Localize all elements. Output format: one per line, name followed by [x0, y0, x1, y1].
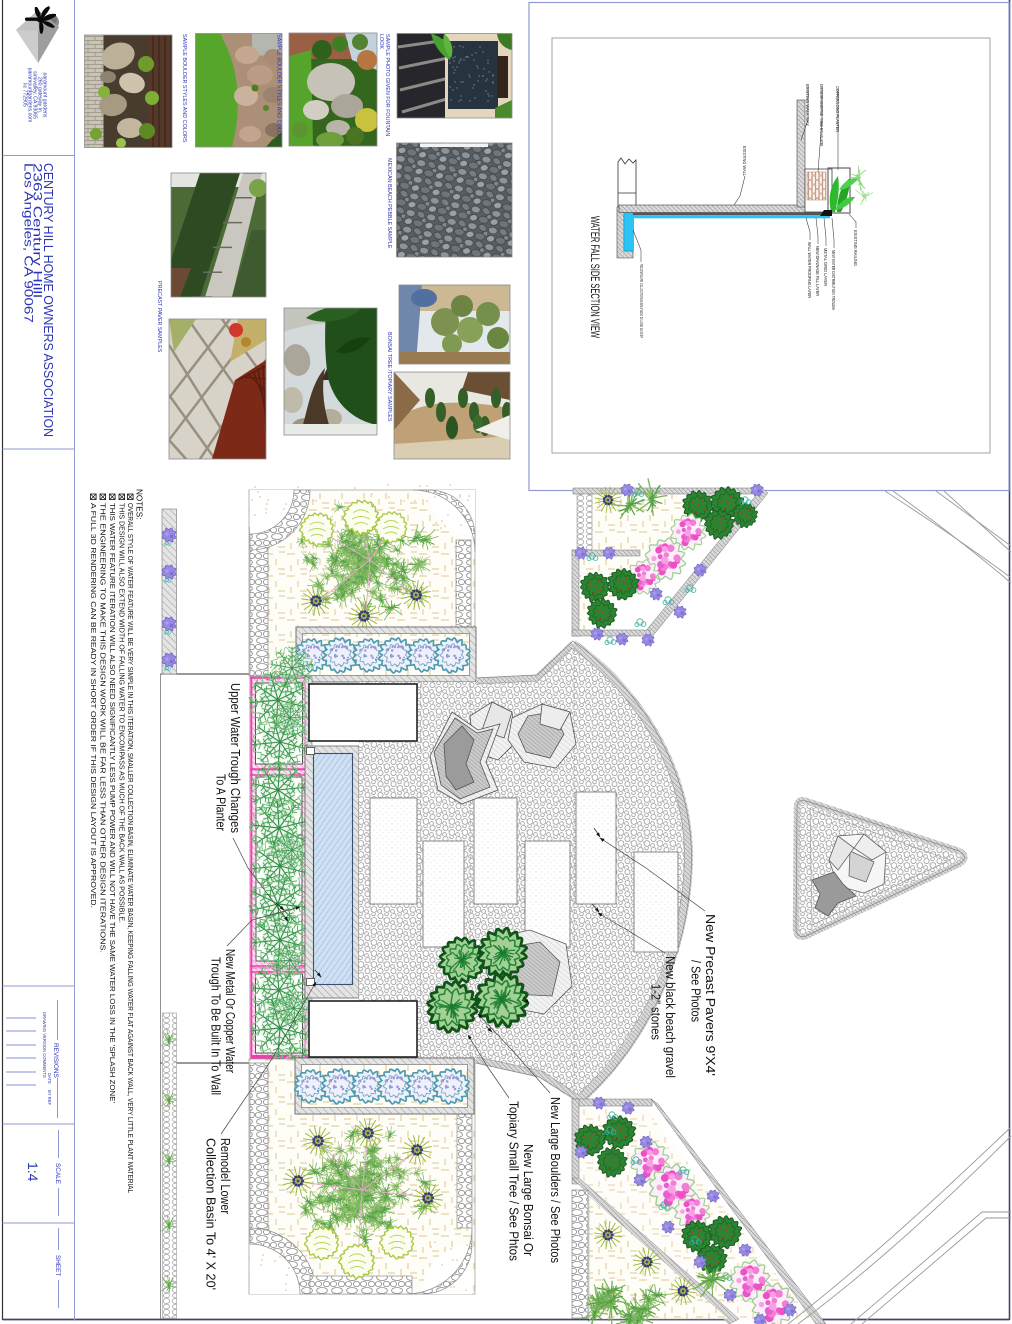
- svg-text:COFFER/LONG PLANTER: COFFER/LONG PLANTER: [835, 86, 840, 132]
- svg-text:RECONFIGURE COLLECTION BASIN 4: RECONFIGURE COLLECTION BASIN 4 WIDE 20 L…: [639, 264, 644, 338]
- svg-text:SCALE: SCALE: [54, 1163, 61, 1184]
- svg-text:1-2" stones: 1-2" stones: [649, 984, 664, 1040]
- svg-text:To A Planter: To A Planter: [214, 774, 229, 832]
- svg-text:Topiary Small Tree / See Phtos: Topiary Small Tree / See Phtos: [507, 1101, 522, 1261]
- svg-text:BY REF: BY REF: [47, 1090, 52, 1105]
- svg-text:SAMPLE BOULDER STYLES AND COLO: SAMPLE BOULDER STYLES AND COLORS: [181, 34, 187, 143]
- svg-text:EXISTING REF HIGHER POND - TUR: EXISTING REF HIGHER POND - TURNED INTO A…: [819, 84, 824, 146]
- svg-text:New Precast Pavers 9'X4': New Precast Pavers 9'X4': [703, 914, 718, 1076]
- svg-text:BONSAI TREE /TOPIARY SAMPLES: BONSAI TREE /TOPIARY SAMPLES: [386, 332, 392, 422]
- svg-text:EXISTING RAILING: EXISTING RAILING: [853, 230, 858, 267]
- svg-text:A FULL 3D RENDERING CAN BE RE: A FULL 3D RENDERING CAN BE READY IN SHOR…: [89, 503, 98, 908]
- svg-text:Los Angeles, CA 90067: Los Angeles, CA 90067: [22, 163, 35, 323]
- svg-text:NEW DRAINAGE FILL LAYER: NEW DRAINAGE FILL LAYER: [815, 246, 820, 296]
- svg-text:Upper Water Trough Changes: Upper Water Trough Changes: [228, 683, 243, 833]
- svg-text:SHEET: SHEET: [54, 1255, 61, 1276]
- svg-text:SAMPLE BOULDER STYLES AND COLO: SAMPLE BOULDER STYLES AND COLORS: [276, 34, 282, 143]
- svg-text:WATER FALL SIDE SECTION VIEW: WATER FALL SIDE SECTION VIEW: [588, 216, 600, 338]
- svg-text:MEXICAN BEACH PEBBLE SAMPLE: MEXICAN BEACH PEBBLE SAMPLE: [386, 158, 392, 249]
- svg-text:Trough To Be Built In To Wall: Trough To Be Built In To Wall: [209, 957, 224, 1095]
- svg-text:NEW WATER DISTRIBUTION TROUGH: NEW WATER DISTRIBUTION TROUGH: [831, 250, 836, 310]
- svg-text:Collection Basin To 4' X 20': Collection Basin To 4' X 20': [204, 1138, 219, 1290]
- svg-text:THIS WATER FEATURE ITERATION W: THIS WATER FEATURE ITERATION WILL ALSO N…: [108, 503, 117, 1104]
- svg-text:WALL WATER PROOFING LAYER: WALL WATER PROOFING LAYER: [807, 242, 812, 298]
- svg-text:lic 772905: lic 772905: [22, 83, 28, 107]
- svg-text:DRAWING VERSION COMMENTS: DRAWING VERSION COMMENTS: [42, 1012, 47, 1078]
- svg-text:New black beach gravel: New black beach gravel: [663, 956, 678, 1078]
- svg-text:New Large Bonsai Or: New Large Bonsai Or: [521, 1144, 536, 1257]
- svg-text:REVISIONS: REVISIONS: [52, 1043, 59, 1078]
- svg-text:EXISTING WALL: EXISTING WALL: [742, 146, 747, 176]
- svg-text:THE ENGINEERING TO MAKE THIS D: THE ENGINEERING TO MAKE THIS DESIGN WORK…: [99, 503, 108, 953]
- svg-text:1:4: 1:4: [25, 1162, 41, 1182]
- svg-text:THIS DESIGN WILL ALSO EXTEND W: THIS DESIGN WILL ALSO EXTEND WIDTH OF FA…: [118, 503, 127, 923]
- svg-text:Remodel Lower: Remodel Lower: [218, 1138, 233, 1215]
- svg-text:METAL GRID LAYER: METAL GRID LAYER: [823, 248, 828, 286]
- svg-text:PRECAST PAVER SAMPLES: PRECAST PAVER SAMPLES: [156, 281, 162, 353]
- svg-text:/ See Photos: / See Photos: [689, 960, 704, 1022]
- svg-text:EXISTING WALK WAY: EXISTING WALK WAY: [805, 84, 810, 126]
- svg-text:LOOK: LOOK: [378, 34, 384, 49]
- svg-text:SAMPLE PHOTO GIVEN FOR FOUNTAI: SAMPLE PHOTO GIVEN FOR FOUNTAIN: [384, 34, 390, 136]
- svg-text:New Metal Or Copper Water: New Metal Or Copper Water: [223, 949, 238, 1074]
- svg-text:New Large Boulders / See Phot: New Large Boulders / See Photos: [548, 1097, 563, 1263]
